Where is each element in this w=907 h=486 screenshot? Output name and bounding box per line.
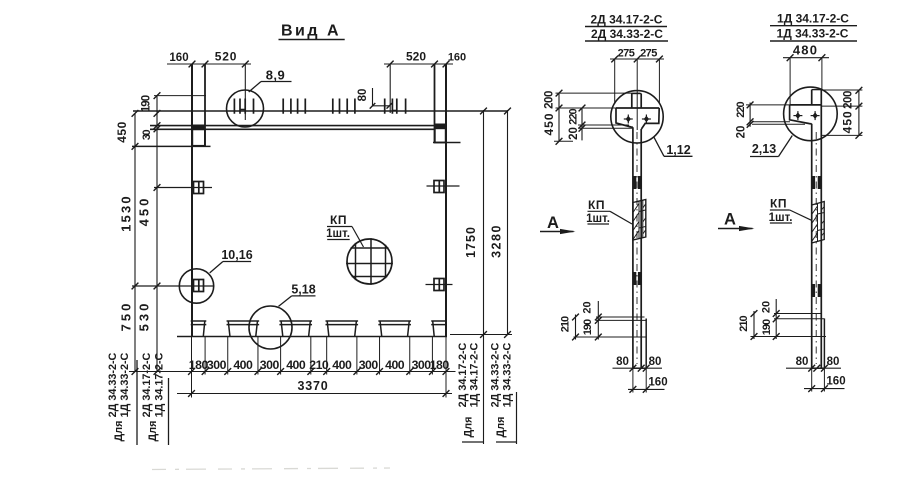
svg-text:200: 200	[544, 91, 556, 109]
svg-text:КП: КП	[588, 198, 605, 212]
svg-text:300: 300	[207, 358, 227, 372]
svg-text:275: 275	[640, 48, 657, 60]
svg-text:2Д 34.33-2-С: 2Д 34.33-2-С	[107, 352, 119, 417]
svg-text:400: 400	[332, 358, 352, 372]
svg-text:А: А	[724, 211, 736, 229]
svg-text:2Д 34.33-2-С: 2Д 34.33-2-С	[490, 342, 502, 407]
svg-text:1Д 34.17-2-С: 1Д 34.17-2-С	[154, 352, 166, 417]
svg-text:А: А	[547, 214, 559, 232]
svg-text:450: 450	[542, 112, 556, 135]
svg-text:1Д 34.33-2-С: 1Д 34.33-2-С	[777, 27, 849, 41]
svg-text:160: 160	[826, 376, 845, 388]
svg-text:20: 20	[736, 126, 748, 139]
svg-text:1Д 34.33-2-С: 1Д 34.33-2-С	[119, 352, 131, 417]
svg-text:10,16: 10,16	[221, 248, 252, 262]
svg-text:520: 520	[215, 50, 237, 64]
svg-text:2Д 34.33-2-С: 2Д 34.33-2-С	[591, 27, 663, 41]
svg-text:180: 180	[189, 358, 209, 372]
svg-text:160: 160	[648, 377, 667, 389]
svg-text:520: 520	[406, 50, 426, 64]
svg-text:1750: 1750	[464, 226, 478, 258]
svg-text:530: 530	[137, 301, 152, 332]
svg-text:2Д 34.17-2-С: 2Д 34.17-2-С	[141, 352, 153, 417]
svg-text:400: 400	[385, 358, 405, 372]
svg-text:750: 750	[119, 301, 134, 332]
svg-text:400: 400	[233, 358, 253, 372]
svg-text:КП: КП	[330, 213, 347, 227]
svg-text:Для: Для	[113, 421, 125, 442]
svg-text:3280: 3280	[490, 224, 504, 258]
svg-text:КП: КП	[770, 197, 787, 211]
svg-text:300: 300	[260, 358, 280, 372]
svg-text:1шт.: 1шт.	[586, 213, 610, 225]
svg-text:5,18: 5,18	[291, 282, 315, 296]
svg-text:400: 400	[286, 358, 306, 372]
svg-text:300: 300	[359, 358, 379, 372]
svg-text:1Д 34.17-2-С: 1Д 34.17-2-С	[469, 342, 481, 407]
svg-text:450: 450	[841, 110, 855, 133]
svg-text:160: 160	[448, 52, 466, 64]
svg-text:80: 80	[357, 89, 369, 102]
svg-text:1Д 34.17-2-С: 1Д 34.17-2-С	[777, 12, 849, 26]
svg-text:1Д 34.33-2-С: 1Д 34.33-2-С	[502, 342, 514, 407]
svg-text:Для: Для	[495, 417, 507, 438]
svg-text:480: 480	[793, 43, 818, 58]
svg-text:210: 210	[560, 316, 572, 332]
svg-text:300: 300	[412, 358, 432, 372]
svg-text:2,13: 2,13	[752, 142, 776, 156]
svg-text:2Д 34.17-2-С: 2Д 34.17-2-С	[457, 342, 469, 407]
svg-text:275: 275	[618, 48, 635, 60]
svg-text:20: 20	[761, 301, 773, 313]
svg-text:220: 220	[568, 108, 580, 124]
svg-text:160: 160	[169, 52, 188, 64]
svg-text:1шт.: 1шт.	[769, 212, 793, 224]
svg-text:1,12: 1,12	[666, 143, 690, 157]
svg-text:180: 180	[430, 358, 450, 372]
svg-text:3370: 3370	[297, 379, 328, 393]
svg-text:2Д 34.17-2-С: 2Д 34.17-2-С	[591, 13, 663, 27]
svg-text:30: 30	[141, 130, 153, 141]
svg-text:Для: Для	[463, 417, 475, 438]
svg-text:210: 210	[309, 358, 329, 372]
svg-text:190: 190	[761, 319, 773, 335]
svg-text:220: 220	[735, 101, 747, 117]
svg-text:450: 450	[115, 121, 129, 143]
svg-text:190: 190	[582, 319, 594, 335]
svg-text:8,9: 8,9	[266, 68, 286, 83]
svg-text:20: 20	[568, 127, 580, 140]
svg-text:80: 80	[616, 356, 629, 368]
svg-text:190: 190	[141, 95, 153, 112]
svg-text:80: 80	[827, 356, 840, 368]
svg-text:1530: 1530	[119, 194, 134, 232]
svg-text:80: 80	[796, 356, 809, 368]
svg-text:20: 20	[582, 301, 594, 313]
svg-text:80: 80	[649, 356, 662, 368]
svg-text:1шт.: 1шт.	[326, 228, 350, 240]
svg-text:210: 210	[738, 315, 750, 331]
svg-text:Вид А: Вид А	[281, 23, 341, 40]
svg-text:Для: Для	[147, 421, 159, 442]
svg-text:450: 450	[137, 196, 152, 227]
